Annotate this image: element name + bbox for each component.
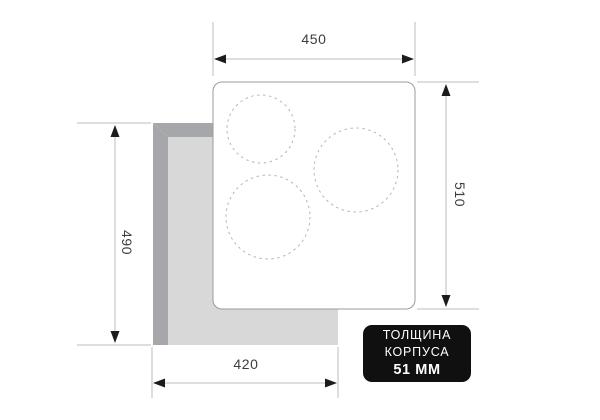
arrow-right-icon: [402, 55, 414, 64]
thickness-badge-line2: КОРПУСА: [385, 345, 450, 360]
arrow-up-icon: [442, 84, 451, 96]
thickness-badge-value: 51 ММ: [393, 362, 440, 379]
arrow-left-icon: [214, 55, 226, 64]
arrow-left-icon: [153, 379, 165, 388]
thickness-badge: ТОЛЩИНА КОРПУСА 51 ММ: [363, 325, 471, 382]
arrow-right-icon: [325, 379, 337, 388]
arrow-up-icon: [111, 125, 120, 137]
dim-bottom-label: 420: [206, 357, 286, 371]
dim-top-label: 450: [274, 32, 354, 46]
dim-right-label: 510: [453, 170, 467, 220]
dimension-diagram-svg: [0, 0, 600, 420]
arrow-down-icon: [111, 331, 120, 343]
hob-panel: [213, 82, 415, 309]
arrow-down-icon: [442, 295, 451, 307]
dim-left-label: 490: [120, 218, 134, 268]
countertop-bevel-left: [153, 123, 168, 345]
dimension-diagram: 450 510 490 420 ТОЛЩИНА КОРПУСА 51 ММ: [0, 0, 600, 420]
thickness-badge-line1: ТОЛЩИНА: [383, 328, 452, 343]
